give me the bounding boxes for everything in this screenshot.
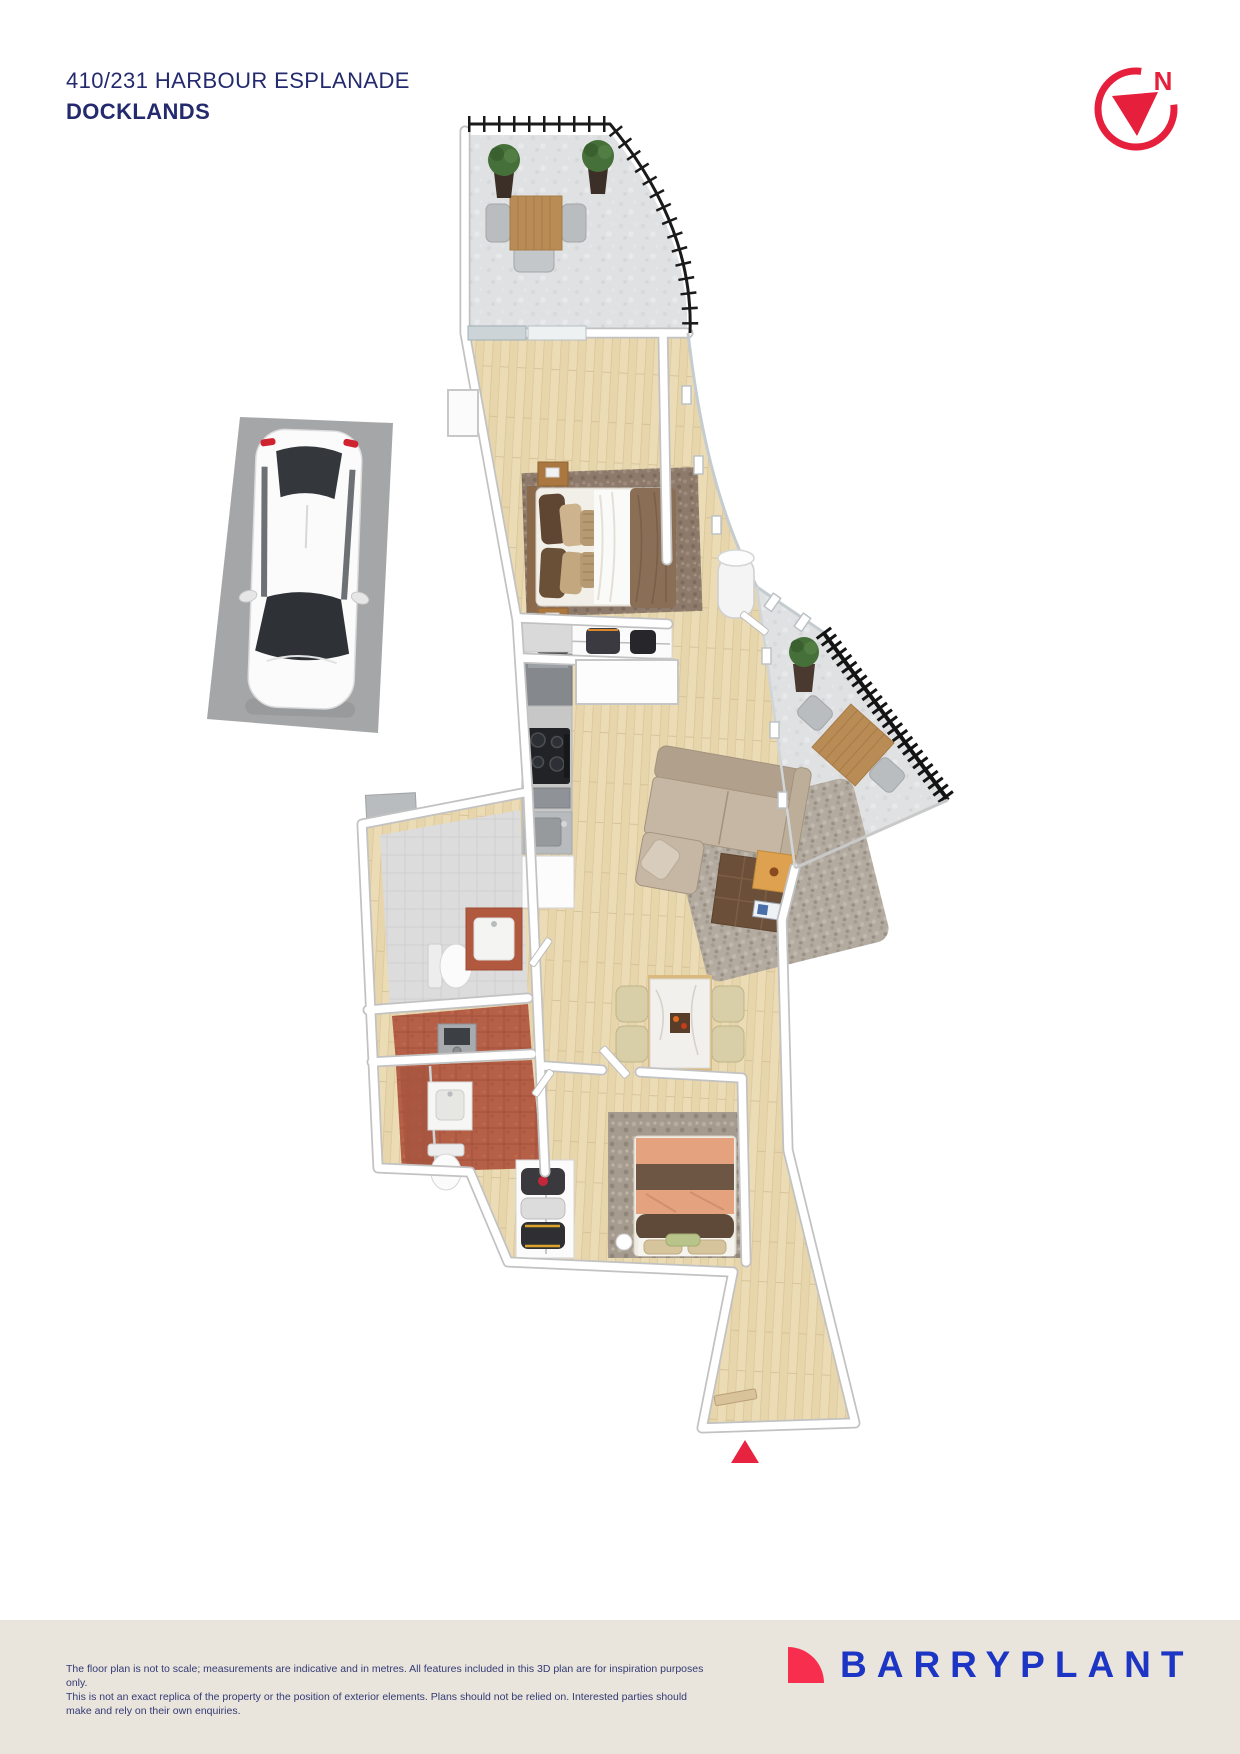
pillow	[666, 1234, 700, 1246]
dining-chair	[616, 986, 648, 1022]
sliding-door-glass	[468, 326, 526, 340]
dining-chair	[712, 1026, 744, 1062]
dining-table	[648, 975, 712, 1072]
apartment	[362, 124, 948, 1463]
property-header: 410/231 HARBOUR ESPLANADE DOCKLANDS	[66, 68, 410, 125]
dining-chair	[616, 1026, 648, 1062]
agency-logo: BARRYPLANT	[788, 1644, 1194, 1686]
north-indicator-icon: N	[1086, 54, 1186, 166]
cooktop	[526, 728, 570, 784]
structural-column	[448, 390, 478, 436]
north-label: N	[1154, 66, 1173, 96]
car	[234, 428, 376, 718]
bed-duvet-peach	[636, 1190, 734, 1214]
address-line: 410/231 HARBOUR ESPLANADE	[66, 68, 410, 94]
vanity	[428, 1082, 472, 1130]
disclaimer-line1: The floor plan is not to scale; measurem…	[66, 1662, 706, 1690]
floorplan-3d-render	[0, 0, 1240, 1754]
disclaimer: The floor plan is not to scale; measurem…	[66, 1662, 706, 1718]
north-arrow	[1112, 92, 1158, 136]
bedroom2	[616, 1136, 736, 1256]
floorplan-page: 410/231 HARBOUR ESPLANADE DOCKLANDS N Th…	[0, 0, 1240, 1754]
brand-name: BARRYPLANT	[840, 1644, 1194, 1686]
brand-mark-icon	[788, 1644, 824, 1686]
hanging-clothes	[586, 628, 620, 654]
hanging-clothes	[521, 1198, 565, 1219]
outdoor-chair	[562, 204, 586, 242]
floor-lamp	[616, 1234, 632, 1250]
car-space	[207, 417, 393, 733]
toilet	[428, 944, 472, 988]
bed-duvet-peach	[636, 1138, 734, 1164]
entry-arrow	[731, 1440, 759, 1463]
suburb-line: DOCKLANDS	[66, 99, 410, 125]
dining-chair	[712, 986, 744, 1022]
centerpiece	[670, 1013, 690, 1033]
footer-band: The floor plan is not to scale; measurem…	[0, 1620, 1240, 1754]
hanging-clothes	[630, 630, 656, 654]
bed-duvet-stripe	[636, 1164, 734, 1190]
walk-in-storage	[576, 660, 678, 704]
round-column	[718, 550, 754, 618]
outdoor-table	[510, 196, 562, 250]
sliding-door-panel	[528, 326, 586, 340]
disclaimer-line2: This is not an exact replica of the prop…	[66, 1690, 706, 1718]
outdoor-chair	[486, 204, 510, 242]
vanity	[466, 908, 522, 970]
